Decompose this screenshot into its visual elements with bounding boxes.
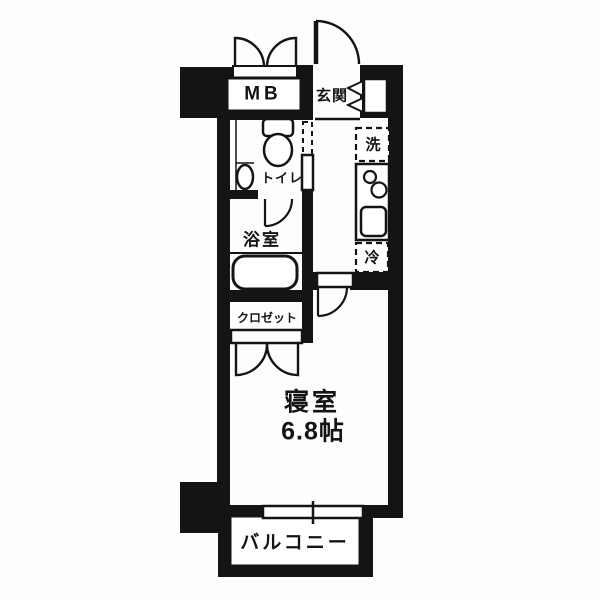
- closet-threshold: [231, 330, 302, 343]
- wall-right: [388, 65, 403, 518]
- bath-door-arc-icon: [265, 199, 292, 226]
- toilet-bowl: [264, 134, 292, 166]
- floor-plan: MB 玄関 トイレ 洗 冷 浴室 クロゼット 寝室 6.8帖 バルコニー: [0, 0, 600, 600]
- toilet-door-dashed: [303, 122, 312, 155]
- wall-bedroom-bottom-right: [363, 505, 403, 518]
- wall-balcony-right: [360, 518, 373, 570]
- wall-top-left-block: [180, 67, 232, 118]
- wall-toilet-bottom: [217, 190, 258, 199]
- bathtub-icon: [233, 256, 297, 289]
- wall-left: [217, 117, 230, 518]
- wall-bath-bottom: [217, 290, 313, 302]
- toilet-door: [302, 122, 313, 190]
- bedroom-door-arc-icon: [318, 287, 347, 316]
- closet-door-left: [236, 343, 267, 375]
- toilet-label: トイレ: [261, 172, 303, 185]
- bedroom-door-leaf: [317, 273, 353, 287]
- closet-label: クロゼット: [237, 312, 297, 324]
- closet-area: [231, 330, 302, 375]
- bedroom-door-swing: [318, 287, 347, 316]
- meter-box-label: MB: [244, 85, 282, 104]
- washer-label: 洗: [365, 138, 380, 153]
- fold-triangle-bottom: [348, 98, 363, 112]
- mb-threshold: [233, 66, 297, 78]
- balcony-label: バルコニー: [240, 534, 350, 553]
- fold-triangle-top: [348, 81, 363, 96]
- double-swing-door-icon: [235, 38, 296, 66]
- mb-door-right: [267, 38, 296, 66]
- toilet-door-leaf: [302, 155, 313, 190]
- toilet-icon: [263, 119, 293, 166]
- bedroom-size-label: 6.8帖: [281, 420, 345, 445]
- wall-bedroom-door-jamb: [302, 272, 318, 290]
- entry-door-swing: [316, 21, 359, 64]
- wall-bedroom-top-right: [350, 272, 403, 290]
- bath-label: 浴室: [243, 232, 281, 249]
- floor-plan-drawing: [0, 0, 600, 600]
- entrance-label: 玄関: [316, 89, 348, 104]
- bedroom-door: [317, 273, 353, 316]
- fridge-label: 冷: [364, 251, 379, 266]
- closet-double-door-icon: [236, 343, 298, 375]
- shoe-cabinet: [364, 79, 387, 113]
- kitchen-sink-icon: [361, 207, 386, 236]
- hand-basin-icon: [237, 165, 253, 189]
- bedroom-label: 寝室: [284, 391, 340, 416]
- closet-door-right: [267, 343, 298, 375]
- entry-door-arc-icon: [316, 21, 359, 64]
- bath-door-swing: [265, 199, 292, 226]
- mb-door-left: [235, 38, 264, 66]
- wall-corridor-left: [302, 190, 313, 343]
